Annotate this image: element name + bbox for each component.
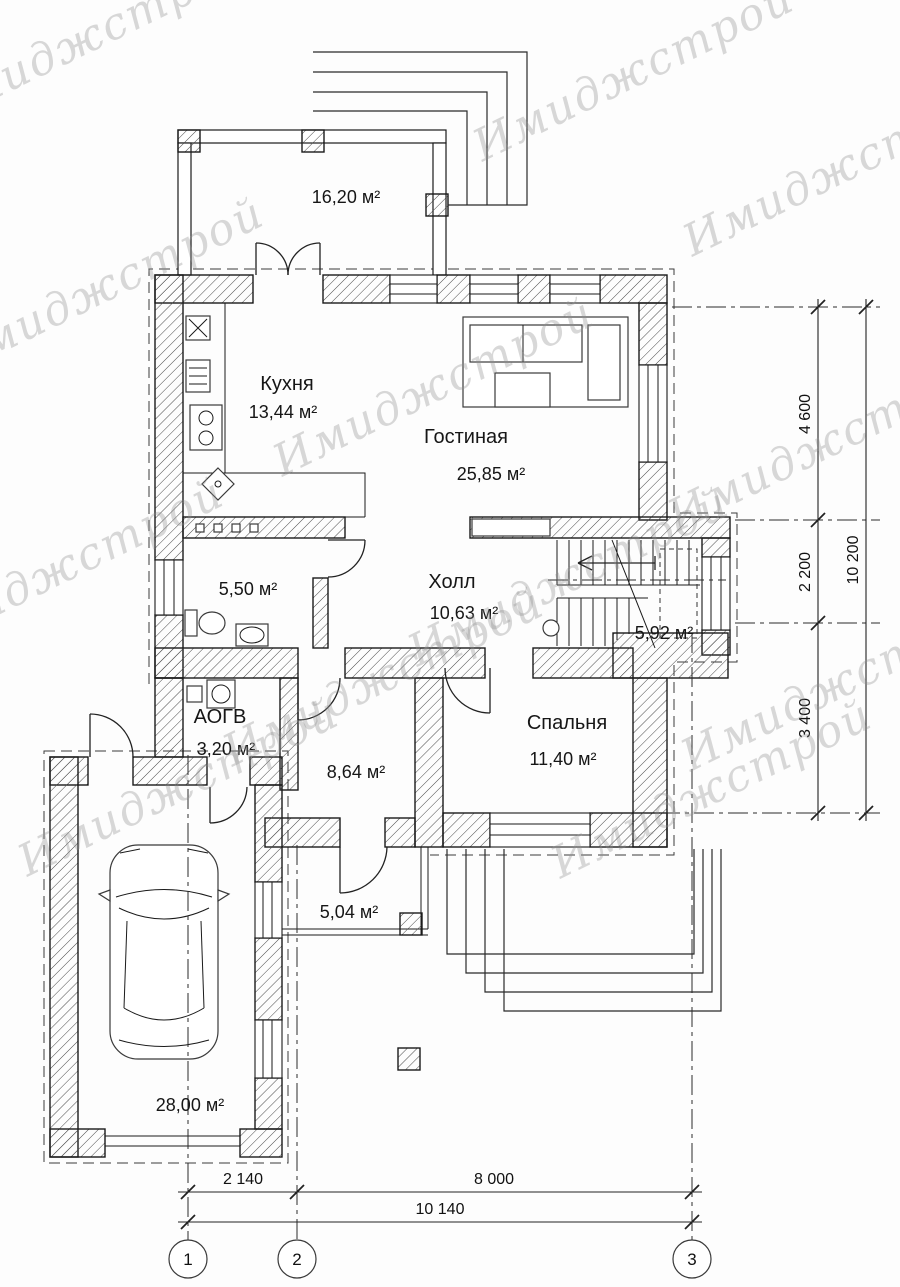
terrace-area-label: 16,20 м² [312,187,380,207]
room864-area-label: 8,64 м² [327,762,385,782]
stairs-area-label: 5,92 м² [635,623,693,643]
car-mirror-right [218,890,229,901]
kitchen-name-label: Кухня [260,373,314,395]
living-name-label: Гостиная [424,426,508,448]
porch-door [340,847,387,893]
window [155,560,183,615]
bedroom-name-label: Спальня [527,712,607,734]
watermark: Имиджстрой [464,0,802,172]
boiler [207,680,235,708]
terrace-double-door [256,243,320,275]
window [470,275,518,303]
window [390,275,437,303]
porch-column [400,913,422,935]
porch-area-label: 5,04 м² [320,902,378,922]
car-mirror-left [99,890,110,901]
dim-bottom-2: 8 000 [474,1171,514,1188]
terrace-column [178,130,200,152]
window [255,1020,282,1078]
grid-axis-1: 1 [183,1250,192,1269]
grid-axis-2: 2 [292,1250,301,1269]
toilet [199,612,225,634]
floor-plan-page: 2 140 8 000 10 140 1 2 3 4 600 2 200 3 4… [0,0,900,1287]
watermark: Имиджстрой [674,67,900,267]
toilet-tank [185,610,197,636]
stove [190,405,222,450]
bathroom-fixtures [185,610,268,646]
boiler-fixtures [187,680,235,708]
window [255,882,282,938]
dimension-bottom: 2 140 8 000 10 140 1 2 3 [169,1171,711,1278]
yard-column [398,1048,420,1070]
bathroom-door [328,540,365,577]
dim-bottom-1: 2 140 [223,1171,263,1188]
watermark: Имиджстрой [0,467,232,667]
window [639,365,667,462]
tv-cabinet [472,519,550,536]
bedroom-area-label: 11,40 м² [529,749,596,769]
car-top-view [99,845,229,1059]
hall-name-label: Холл [428,571,475,593]
living-area-label: 25,85 м² [457,464,525,484]
window [702,557,730,630]
floor-plan-canvas: 2 140 8 000 10 140 1 2 3 4 600 2 200 3 4… [0,0,900,1287]
grid-axis-3: 3 [687,1250,696,1269]
terrace-column [302,130,324,152]
terrace-column [426,194,448,216]
watermark: Имиджстрой [0,0,257,137]
kitchen-area-label: 13,44 м² [249,402,317,422]
porch [282,847,721,1070]
dim-right-2: 2 200 [797,552,814,592]
garage-area-label: 28,00 м² [156,1095,224,1115]
bath-area-label: 5,50 м² [219,579,277,599]
dim-right-total: 10 200 [845,535,862,584]
dim-bottom-total: 10 140 [416,1201,465,1218]
